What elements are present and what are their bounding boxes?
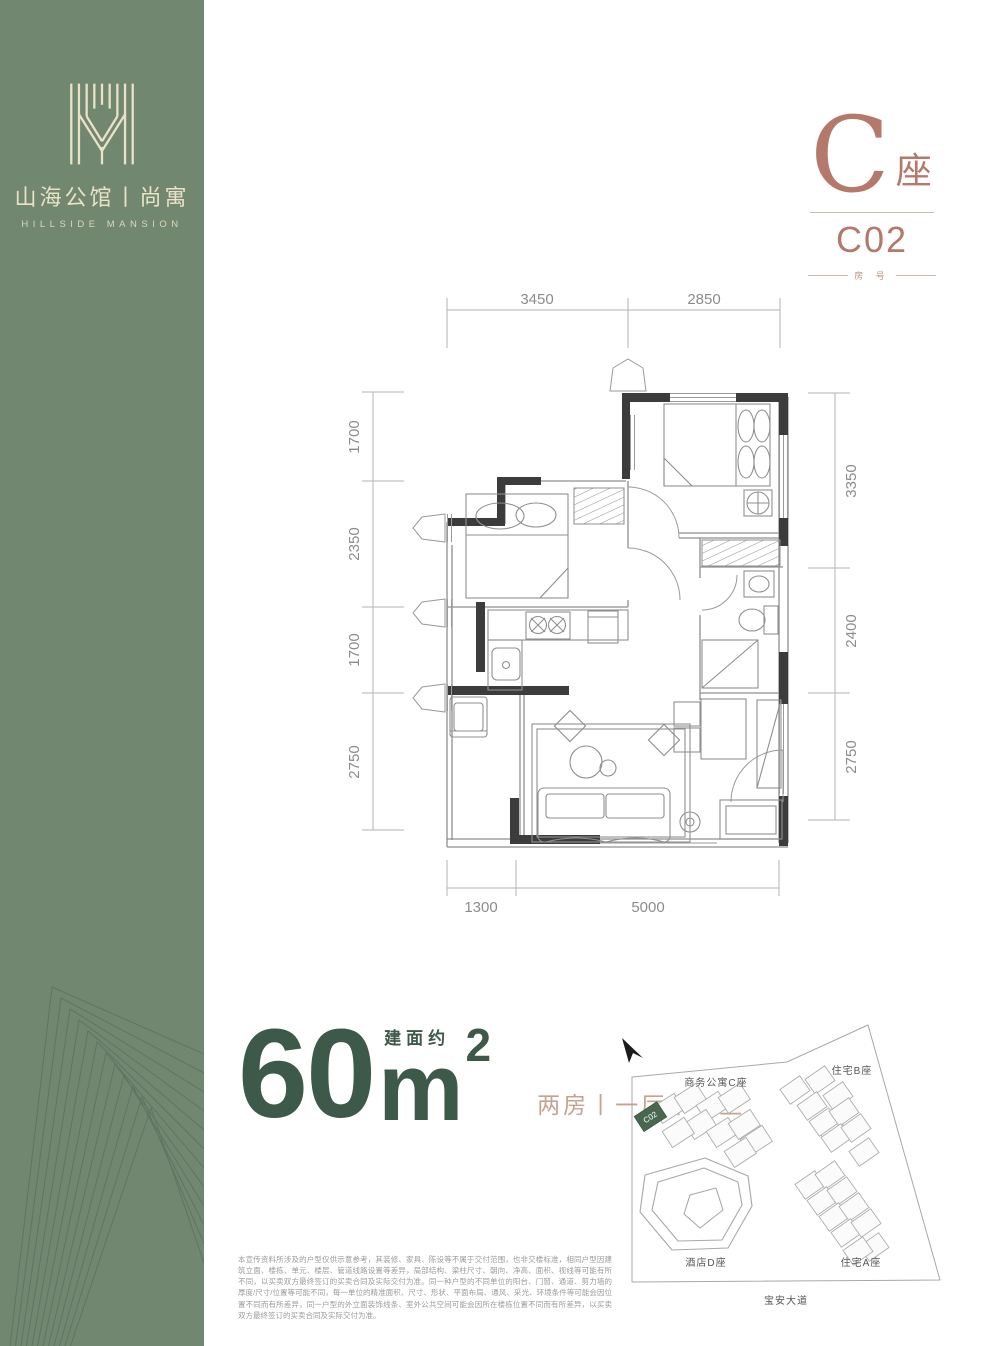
- site-boundary: [632, 1025, 940, 1282]
- building-cluster-a: [795, 1161, 889, 1266]
- area-value: 60: [238, 1022, 374, 1125]
- bed-second: [466, 494, 568, 598]
- sidebar-panel: 山海公馆丨尚寓 HILLSIDE MANSION: [0, 0, 204, 1346]
- furniture: [450, 404, 782, 842]
- brand-block: 山海公馆丨尚寓 HILLSIDE MANSION: [0, 78, 204, 230]
- brand-m-logo-icon: [54, 78, 150, 170]
- svg-text:2350: 2350: [346, 527, 363, 560]
- building-title: C 座: [808, 108, 936, 204]
- living-room: [532, 710, 700, 842]
- area-superscript: 2: [466, 1022, 492, 1068]
- balcony: [450, 697, 487, 737]
- svg-text:1700: 1700: [346, 633, 363, 666]
- svg-text:2400: 2400: [843, 614, 860, 647]
- svg-text:酒店D座: 酒店D座: [685, 1256, 726, 1269]
- area-unit-letter: m: [378, 1051, 463, 1126]
- svg-text:1300: 1300: [464, 899, 497, 916]
- building-hotel-d: [640, 1158, 752, 1250]
- caption-line-left: [808, 275, 848, 276]
- svg-text:3450: 3450: [520, 291, 553, 308]
- disclaimer-text: 本宣传资料所涉及的户型仅供示意参考，其装修、家具、陈设等不属于交付范围，也非交楼…: [238, 1254, 612, 1322]
- svg-text:2750: 2750: [843, 740, 860, 773]
- site-map: C02 商务公寓C座 住宅B座 酒店D座 住宅A座: [605, 1015, 1000, 1315]
- building-letter: C: [810, 108, 890, 204]
- svg-text:2850: 2850: [687, 291, 720, 308]
- entry-landing: [720, 800, 782, 839]
- svg-text:住宅B座: 住宅B座: [832, 1064, 873, 1077]
- svg-text:住宅A座: 住宅A座: [841, 1256, 882, 1269]
- svg-text:5000: 5000: [631, 899, 664, 916]
- bathroom-fixtures: [702, 571, 778, 688]
- floorplan-flyer-page: { "brand": { "name_cn": "山海公馆丨尚寓", "name…: [0, 0, 1000, 1346]
- closets: [574, 488, 780, 566]
- floorplan-drawing: 3450 2850 1700 2350 1700 2750 3350 2400 …: [330, 280, 890, 940]
- svg-text:商务公寓C座: 商务公寓C座: [684, 1076, 747, 1089]
- nightstand: [744, 490, 772, 516]
- building-cluster-c: [652, 1083, 772, 1167]
- unit-badge: C 座 C02 房 号: [808, 108, 936, 282]
- svg-text:宝安大道: 宝安大道: [764, 1294, 808, 1307]
- north-arrow-icon: [622, 1038, 643, 1063]
- svg-text:1700: 1700: [346, 420, 363, 453]
- bed-master: [664, 404, 770, 486]
- building-cluster-b: [780, 1066, 879, 1167]
- brand-name-en: HILLSIDE MANSION: [0, 219, 204, 230]
- svg-text:3350: 3350: [843, 464, 860, 497]
- building-suffix: 座: [896, 142, 934, 194]
- area-unit-column: 建面约 m: [378, 1022, 463, 1126]
- brand-name-cn: 山海公馆丨尚寓: [0, 180, 204, 212]
- kitchen-counter: [488, 610, 628, 690]
- caption-line-right: [896, 275, 936, 276]
- sidebar-chevron-pattern: [0, 954, 204, 1346]
- svg-text:2750: 2750: [346, 745, 363, 778]
- unit-code: C02: [808, 219, 936, 261]
- door-swings: [628, 487, 783, 802]
